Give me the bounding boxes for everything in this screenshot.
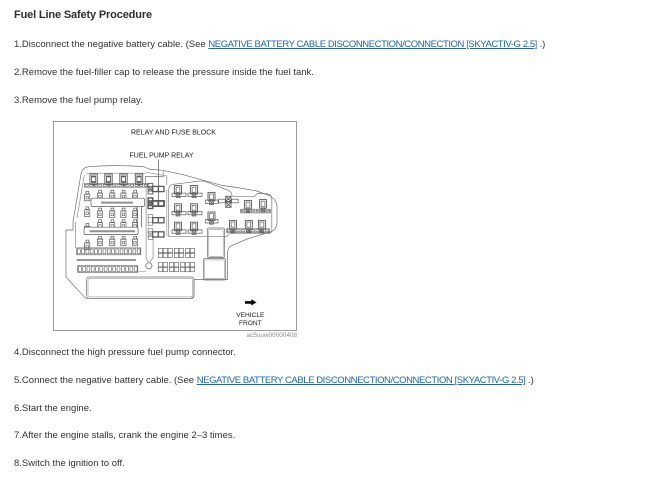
svg-text:FRONT: FRONT bbox=[239, 320, 262, 327]
svg-text:VEHICLE: VEHICLE bbox=[236, 312, 265, 319]
svg-text:RELAY AND FUSE BLOCK: RELAY AND FUSE BLOCK bbox=[131, 129, 216, 136]
svg-text:FUEL PUMP RELAY: FUEL PUMP RELAY bbox=[130, 152, 194, 159]
